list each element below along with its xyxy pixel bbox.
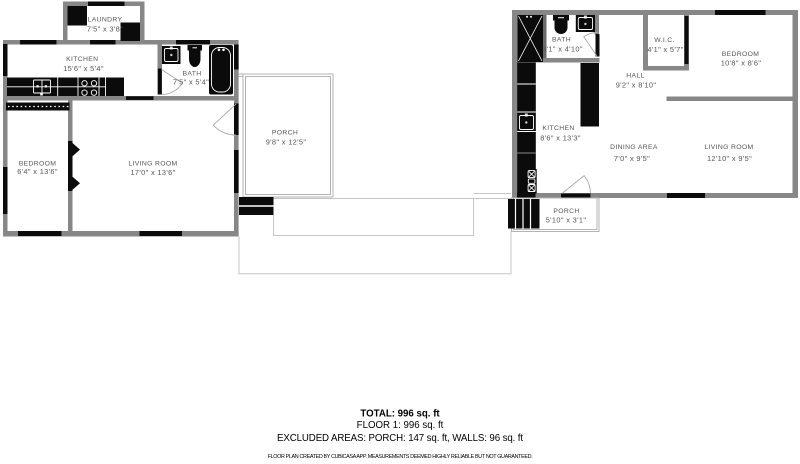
svg-text:17'0" x 13'6": 17'0" x 13'6"	[130, 168, 175, 177]
svg-text:LIVING ROOM: LIVING ROOM	[128, 160, 177, 167]
svg-text:6'4" x 13'6": 6'4" x 13'6"	[17, 167, 58, 176]
svg-text:3'1" x 4'10": 3'1" x 4'10"	[542, 44, 583, 53]
svg-text:4'1" x 5'7": 4'1" x 5'7"	[647, 45, 683, 54]
svg-text:HALL: HALL	[626, 72, 644, 79]
svg-text:PORCH: PORCH	[553, 208, 579, 215]
svg-text:8'6" x 13'3": 8'6" x 13'3"	[540, 134, 581, 143]
svg-text:W.I.C.: W.I.C.	[654, 37, 675, 44]
svg-text:7'0" x 9'5": 7'0" x 9'5"	[614, 154, 650, 163]
svg-text:9'2" x 8'10": 9'2" x 8'10"	[616, 81, 657, 90]
svg-text:KITCHEN: KITCHEN	[542, 125, 574, 132]
svg-text:7'5" x 5'4": 7'5" x 5'4"	[173, 77, 209, 86]
svg-text:15'6" x 5'4": 15'6" x 5'4"	[63, 64, 104, 73]
svg-text:12'10" x 9'5": 12'10" x 9'5"	[707, 154, 752, 163]
svg-text:LAUNDRY: LAUNDRY	[88, 16, 123, 23]
svg-text:FLOOR PLAN CREATED BY CUBICASA: FLOOR PLAN CREATED BY CUBICASA APP. MEAS…	[268, 454, 533, 460]
svg-text:EXCLUDED AREAS: PORCH: 147 sq.: EXCLUDED AREAS: PORCH: 147 sq. ft, WALLS…	[277, 433, 523, 444]
svg-text:PORCH: PORCH	[272, 129, 298, 136]
svg-text:FLOOR 1: 996 sq. ft: FLOOR 1: 996 sq. ft	[357, 420, 444, 431]
svg-text:BEDROOM: BEDROOM	[722, 51, 760, 58]
svg-text:10'8" x 8'6": 10'8" x 8'6"	[721, 59, 762, 68]
svg-text:7'5" x 3'8": 7'5" x 3'8"	[87, 24, 123, 33]
svg-text:BATH: BATH	[552, 37, 571, 44]
svg-text:5'10" x 3'1": 5'10" x 3'1"	[546, 215, 587, 224]
svg-text:TOTAL: 996 sq. ft: TOTAL: 996 sq. ft	[360, 409, 440, 420]
svg-text:LIVING ROOM: LIVING ROOM	[704, 144, 753, 151]
svg-text:9'8" x 12'5": 9'8" x 12'5"	[266, 137, 307, 146]
svg-text:KITCHEN: KITCHEN	[66, 56, 98, 63]
svg-text:DINING AREA: DINING AREA	[610, 144, 658, 151]
